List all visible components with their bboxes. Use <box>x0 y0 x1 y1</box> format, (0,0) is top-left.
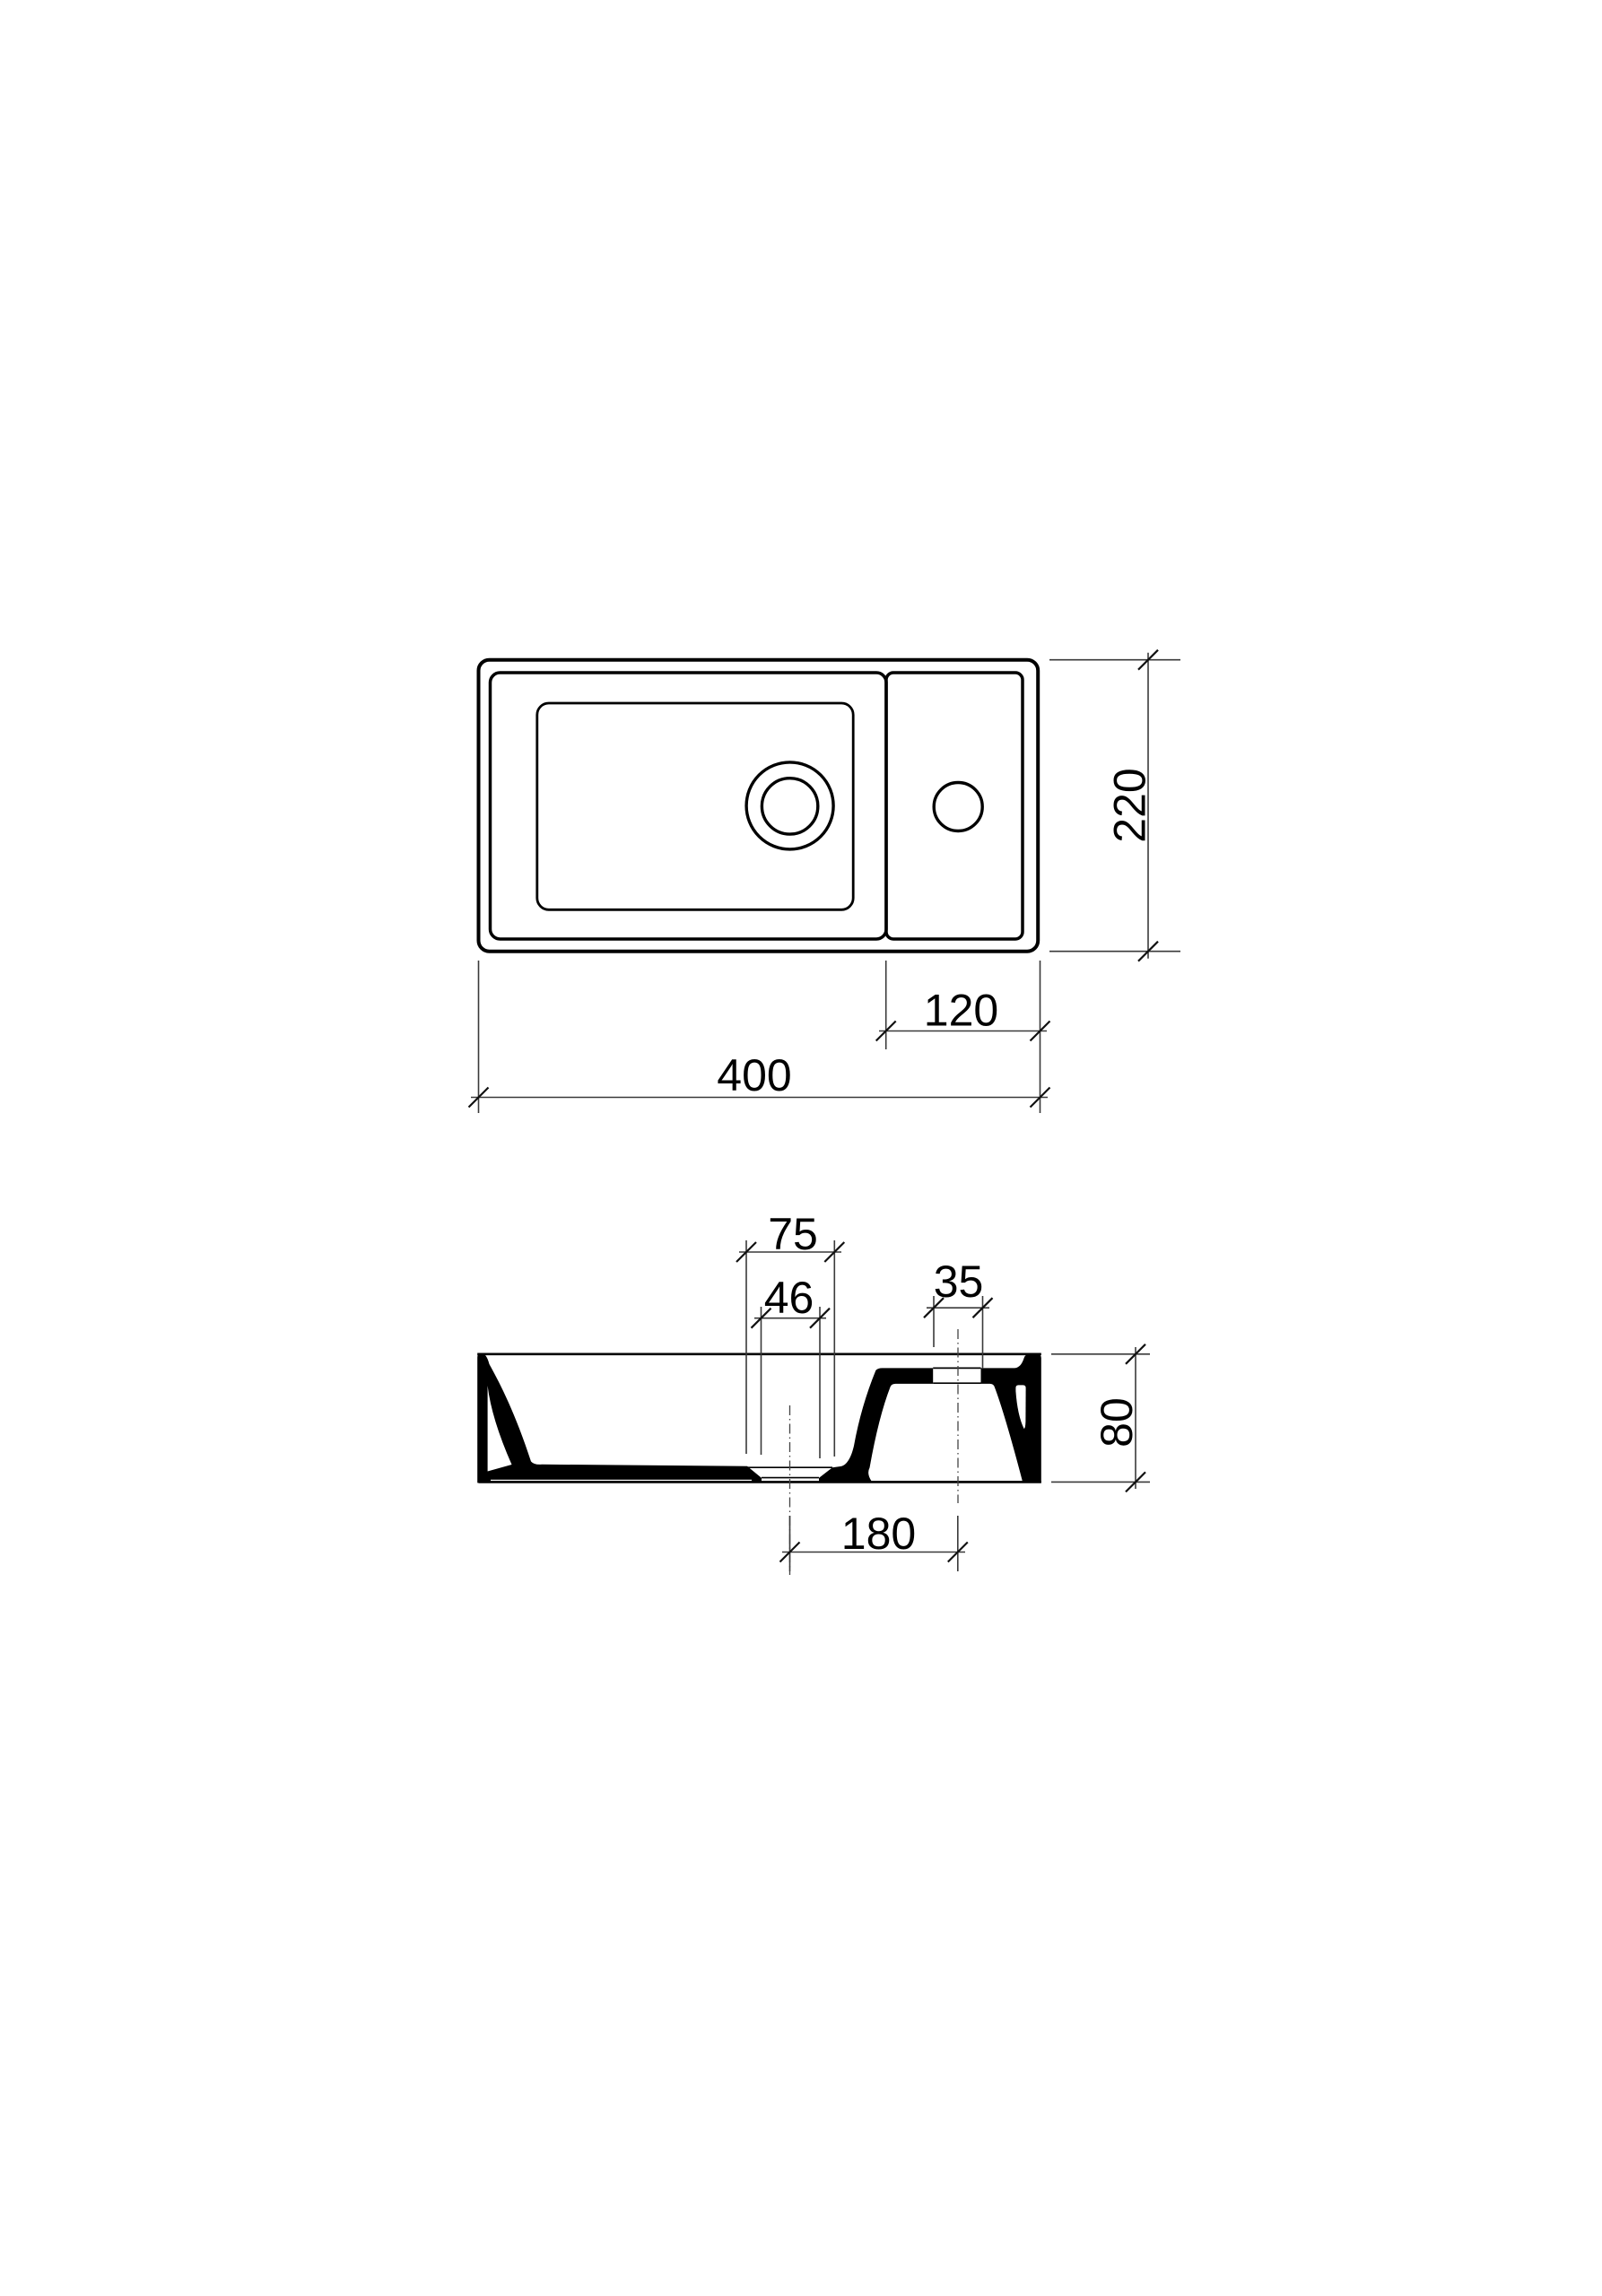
svg-text:220: 220 <box>1105 768 1155 842</box>
svg-text:180: 180 <box>841 1509 916 1559</box>
svg-text:35: 35 <box>934 1257 984 1307</box>
svg-text:400: 400 <box>717 1050 791 1100</box>
svg-text:75: 75 <box>768 1209 818 1259</box>
svg-text:120: 120 <box>924 986 998 1036</box>
svg-text:80: 80 <box>1092 1397 1142 1448</box>
svg-text:46: 46 <box>764 1273 814 1323</box>
